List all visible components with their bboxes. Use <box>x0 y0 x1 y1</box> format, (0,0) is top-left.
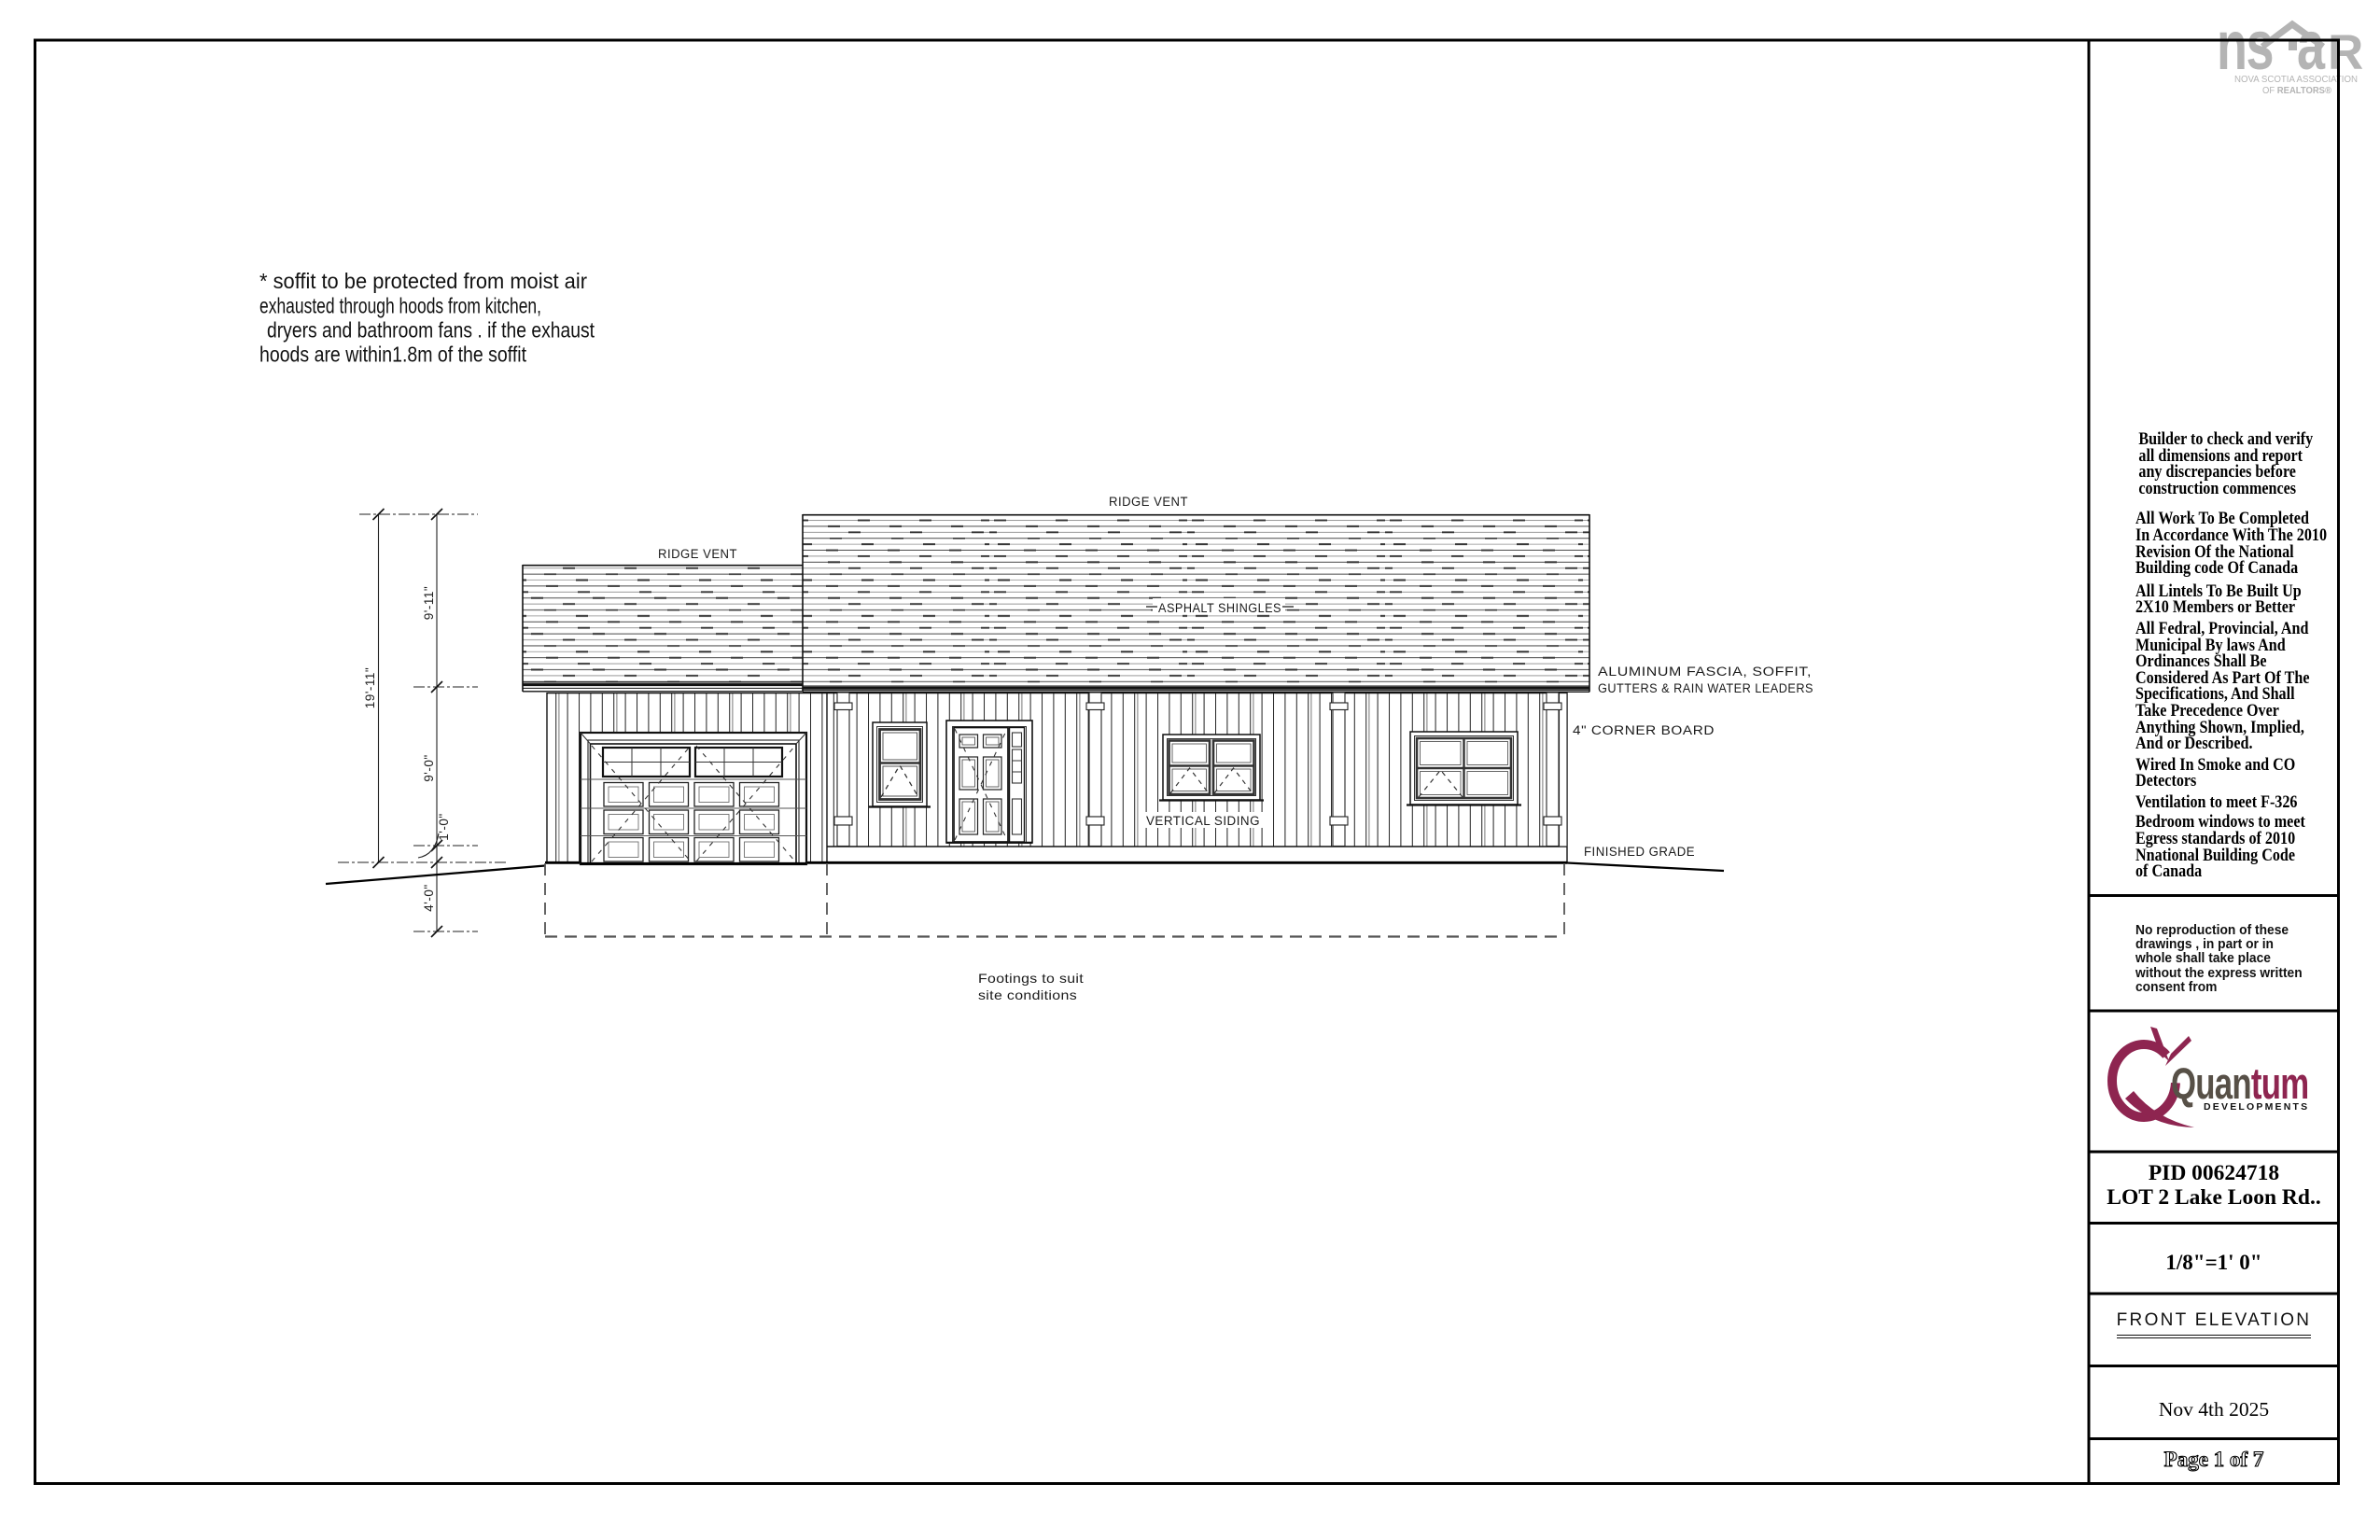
svg-text:* soffit to be protected from: * soffit to be protected from moist air <box>259 269 587 293</box>
svg-text:hoods are within1.8m of the so: hoods are within1.8m of the soffit <box>259 343 527 367</box>
svg-text:GUTTERS & RAIN WATER LEADERS: GUTTERS & RAIN WATER LEADERS <box>1598 681 1813 695</box>
svg-text:1'-0": 1'-0" <box>437 813 451 840</box>
svg-text:9'-0": 9'-0" <box>422 754 436 781</box>
svg-text:19'-11": 19'-11" <box>363 667 377 708</box>
svg-text:Footings to suit: Footings to suit <box>978 971 1084 986</box>
svg-text:4" CORNER BOARD: 4" CORNER BOARD <box>1573 723 1715 737</box>
svg-text:exhausted through hoods from k: exhausted through hoods from kitchen, <box>259 294 541 318</box>
svg-text:R: R <box>2328 25 2363 80</box>
svg-text:RIDGE VENT: RIDGE VENT <box>658 547 737 561</box>
svg-text:4'-0": 4'-0" <box>422 884 436 911</box>
svg-text:VERTICAL SIDING: VERTICAL SIDING <box>1146 814 1260 828</box>
svg-text:ALUMINUM FASCIA, SOFFIT,: ALUMINUM FASCIA, SOFFIT, <box>1598 665 1812 679</box>
svg-text:DEVELOPMENTS: DEVELOPMENTS <box>2204 1101 2309 1113</box>
svg-text:OF REALTORS®: OF REALTORS® <box>2262 86 2332 96</box>
svg-text:ASPHALT SHINGLES: ASPHALT SHINGLES <box>1158 601 1281 615</box>
svg-text:RIDGE VENT: RIDGE VENT <box>1109 495 1188 509</box>
svg-text:FINISHED GRADE: FINISHED GRADE <box>1584 845 1695 859</box>
svg-text:site conditions: site conditions <box>978 987 1077 1002</box>
svg-text:9'-11": 9'-11" <box>422 586 436 620</box>
svg-text:dryers and bathroom fans . if: dryers and bathroom fans . if the exhaus… <box>267 318 595 343</box>
